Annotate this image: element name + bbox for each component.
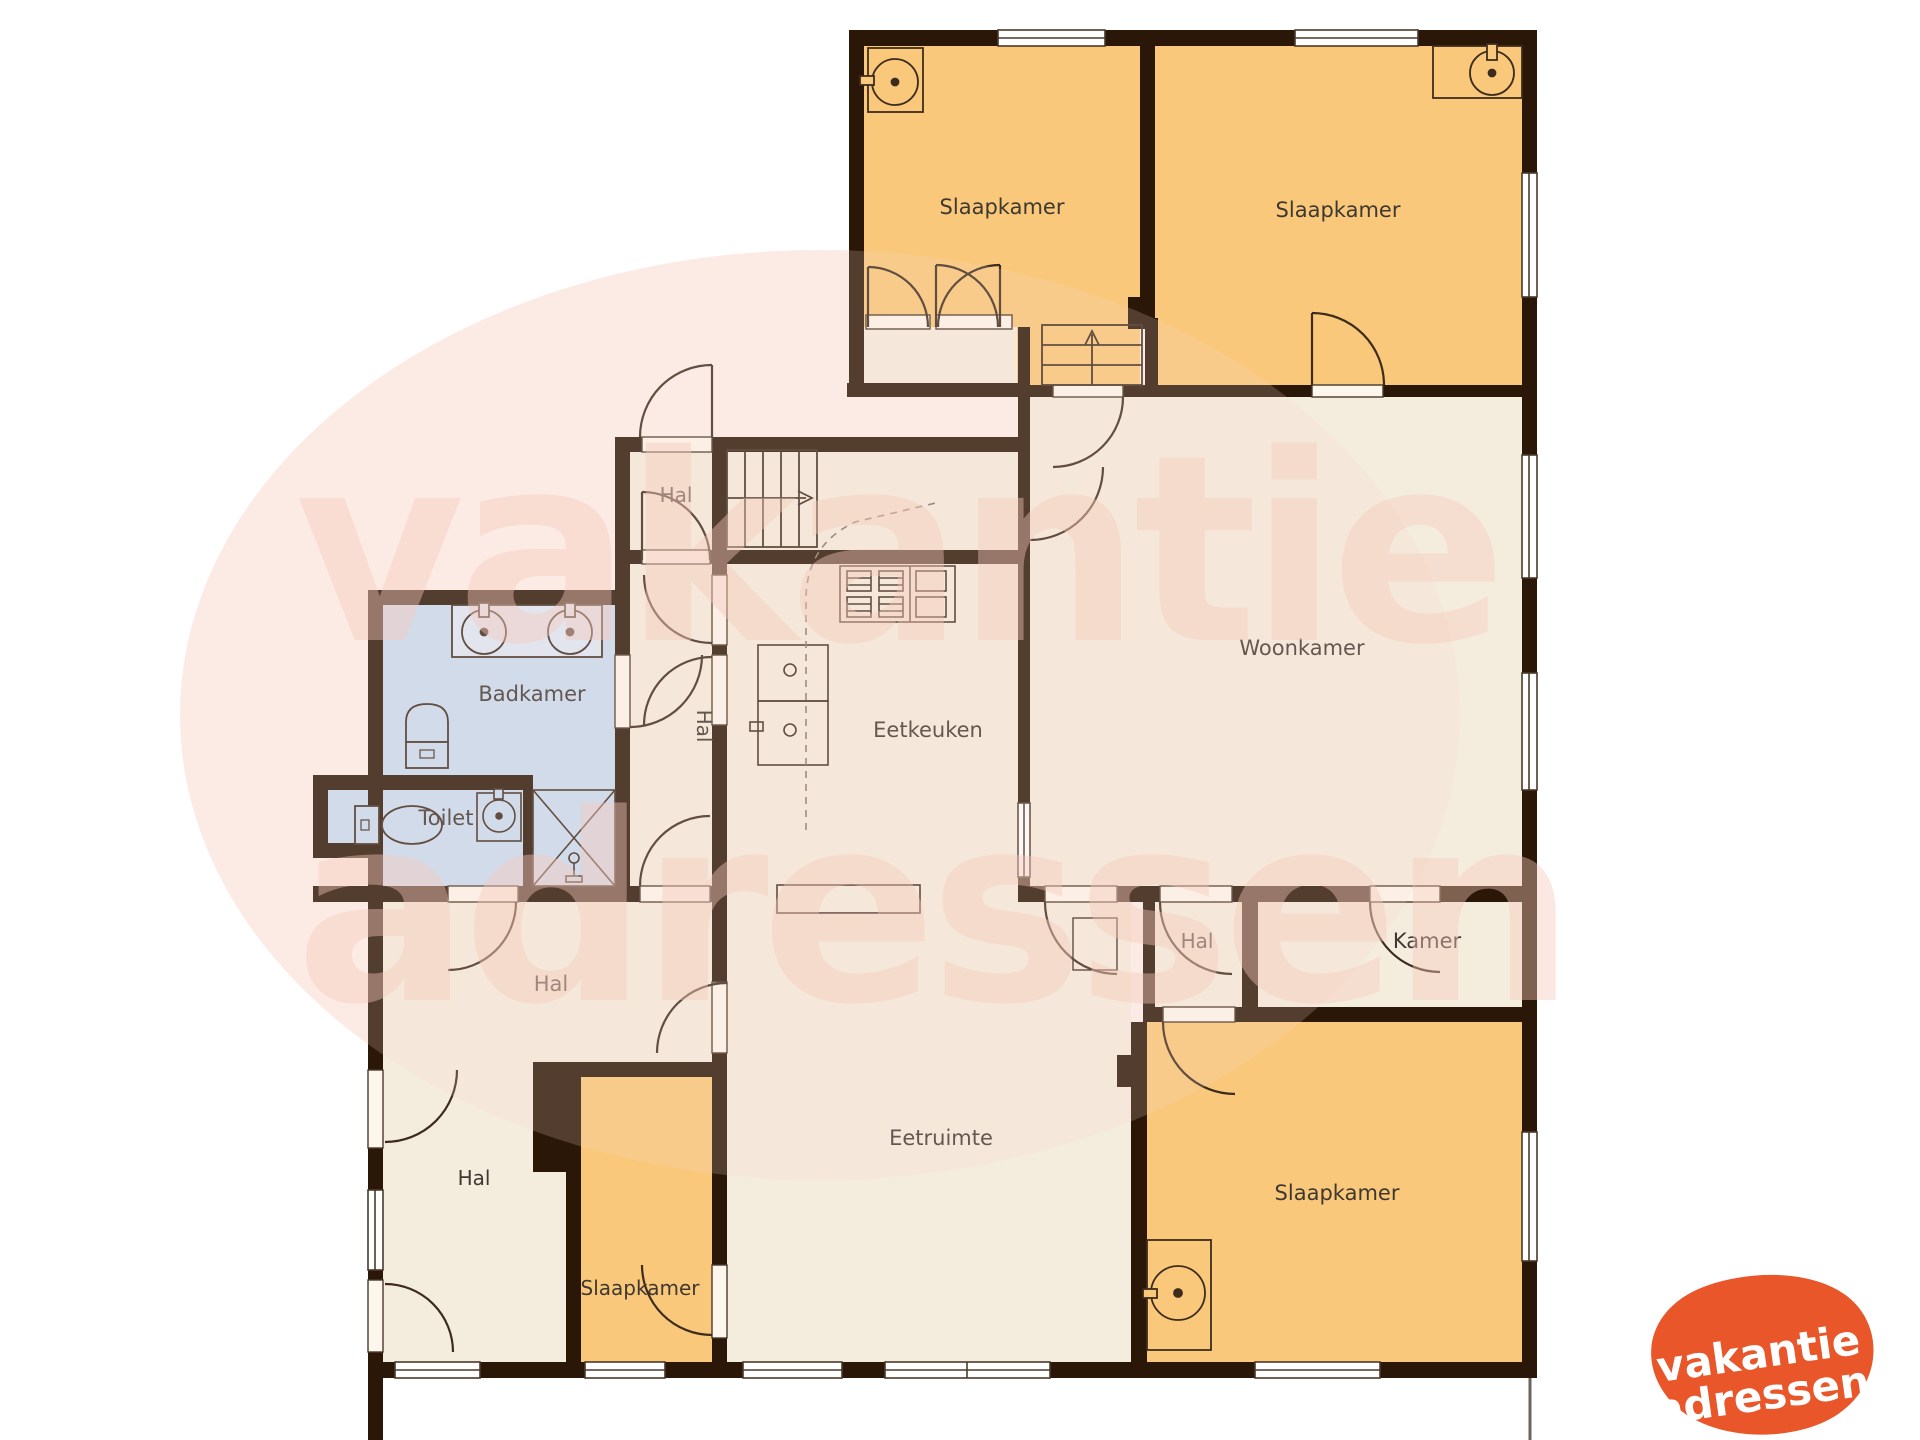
window-icon: [368, 1190, 383, 1270]
window-icon: [998, 30, 1105, 46]
window-icon: [1522, 1132, 1537, 1261]
room-label-hal-lower: Hal: [458, 1166, 491, 1190]
floor-plan-canvas: Slaapkamer Slaapkamer Woonkamer Hal Hal …: [0, 0, 1920, 1440]
room-label-slaapkamer-bottom-left: Slaapkamer: [581, 1276, 701, 1300]
watermark-line2: adressen: [295, 760, 1568, 1062]
window-icon: [1295, 30, 1418, 46]
room-label-slaapkamer-bottom-right: Slaapkamer: [1275, 1181, 1400, 1205]
window-icon: [395, 1362, 480, 1378]
window-icon: [585, 1362, 665, 1378]
room-label-slaapkamer-top-right: Slaapkamer: [1276, 198, 1401, 222]
window-icon: [743, 1362, 842, 1378]
window-icon: [1522, 455, 1537, 578]
window-icon: [1522, 173, 1537, 297]
watermark-line1: vakantie: [295, 400, 1499, 702]
window-icon: [885, 1362, 1050, 1378]
vakantieadressen-logo: vakantie adressen: [1646, 1275, 1874, 1435]
window-icon: [1255, 1362, 1380, 1378]
room-label-slaapkamer-top-left: Slaapkamer: [940, 195, 1065, 219]
